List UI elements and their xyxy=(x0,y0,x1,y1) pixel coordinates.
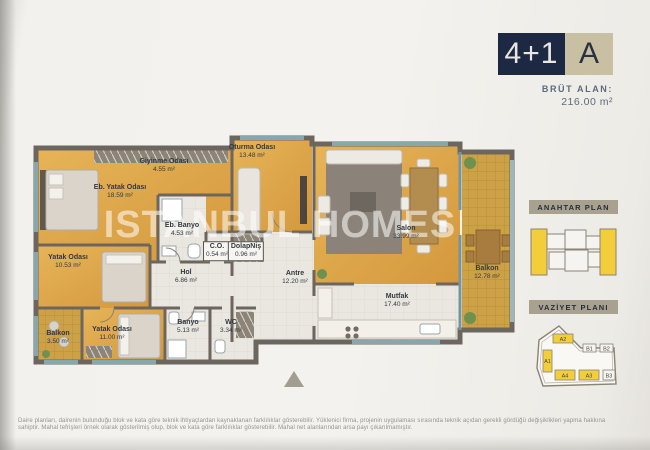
toilet-icon xyxy=(188,244,200,258)
disclaimer-text: Daire planları, dairenin bulunduğu blok … xyxy=(18,418,634,432)
key-plan-title: ANAHTAR PLAN xyxy=(529,200,618,214)
plant-icon xyxy=(42,350,50,358)
plant-icon xyxy=(317,269,327,279)
site-plan-graphic: A2 B1 B2 A1 A4 A3 B3 xyxy=(529,322,618,396)
svg-text:B3: B3 xyxy=(606,374,613,380)
entrance-marker-icon xyxy=(284,371,304,387)
svg-text:B1: B1 xyxy=(586,347,593,353)
disclaimer-line-1: Daire planları, dairenin bulunduğu blok … xyxy=(18,418,634,425)
key-plan-graphic xyxy=(529,222,618,282)
plant-icon xyxy=(464,312,476,324)
floor-plan-page: 4+1 A BRÜT ALAN: 216.00 m² xyxy=(0,0,650,450)
dining-table-icon xyxy=(410,168,438,244)
disclaimer-line-2: sahiptir. Mahal tefrişleri örnek olarak … xyxy=(18,425,634,432)
balcony-table-icon xyxy=(476,230,500,264)
sofa-icon xyxy=(238,168,260,234)
svg-text:A2: A2 xyxy=(560,337,567,343)
svg-text:B2: B2 xyxy=(603,347,610,353)
svg-text:A3: A3 xyxy=(586,374,593,380)
shower-icon xyxy=(162,199,182,221)
svg-text:A4: A4 xyxy=(562,374,569,380)
svg-text:A1: A1 xyxy=(544,359,551,365)
wardrobe-icon xyxy=(94,150,228,163)
site-plan-title: VAZİYET PLANI xyxy=(529,300,618,314)
plant-icon xyxy=(464,157,476,169)
bed-headboard-icon xyxy=(40,170,46,230)
sink-icon xyxy=(420,324,440,334)
coffee-table-icon xyxy=(350,192,376,212)
tv-unit-icon xyxy=(300,176,307,224)
